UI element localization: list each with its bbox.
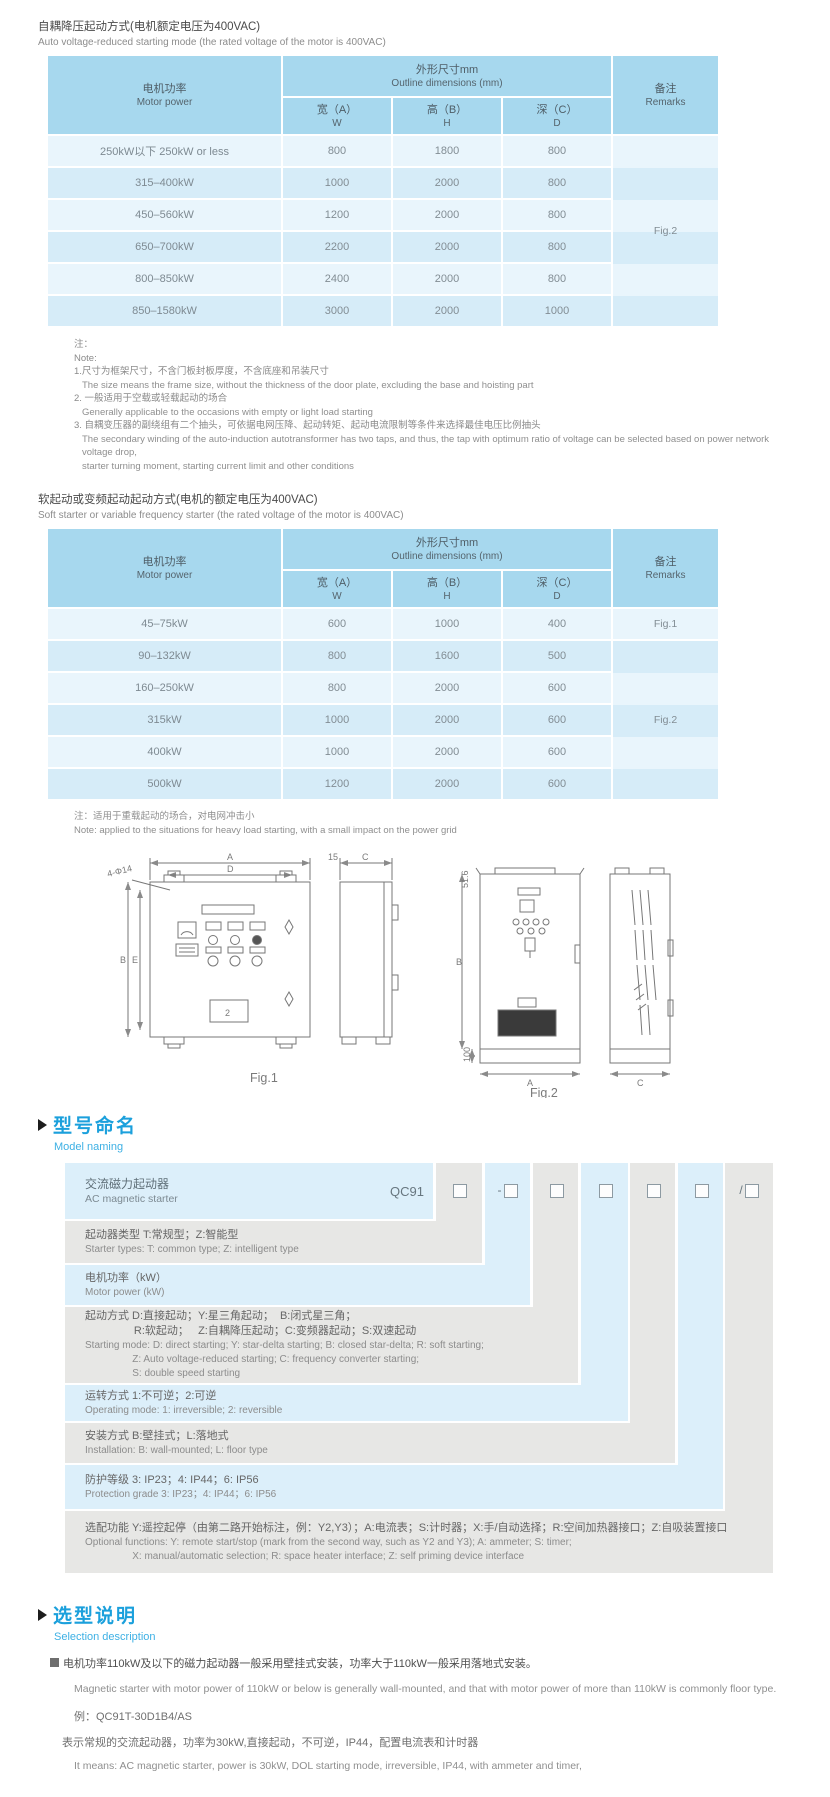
fig1-drawing bbox=[128, 858, 398, 1048]
naming-row-starter-type: 起动器类型 T:常规型；Z:智能型 Starter types: T: comm… bbox=[65, 1221, 482, 1263]
selection-line1-zh: 电机功率110kW及以下的磁力起动器一般采用壁挂式安装，功率大于110kW一般采… bbox=[50, 1655, 792, 1671]
cell-power: 250kW以下 250kW or less bbox=[48, 136, 283, 168]
code-strip-7: / bbox=[725, 1163, 773, 1511]
code-strip-5 bbox=[630, 1163, 675, 1423]
col-header-remarks: 备注 Remarks bbox=[613, 529, 720, 609]
fig2-dim-516: 51.6 bbox=[460, 870, 470, 888]
selection-header: 选型说明 Selection description bbox=[38, 1601, 792, 1643]
fig2-caption: Fig.2 bbox=[530, 1086, 558, 1098]
code-strip-1 bbox=[436, 1163, 482, 1221]
soft-title-zh: 软起动或变频起动起动方式(电机的额定电压为400VAC) bbox=[38, 491, 792, 507]
naming-row-optional-functions: 选配功能 Y:遥控起停（由第二路开始标注，例：Y2,Y3）；A:电流表；S:计时… bbox=[65, 1511, 773, 1573]
model-naming-header: 型号命名 Model naming bbox=[38, 1111, 792, 1153]
cell-depth: 800 bbox=[503, 200, 613, 232]
cell-height: 1000 bbox=[393, 609, 503, 641]
cell-width: 1200 bbox=[283, 200, 393, 232]
naming-row-en: Optional functions: Y: remote start/stop… bbox=[85, 1536, 773, 1564]
code-box-icon bbox=[550, 1184, 564, 1198]
col-remarks-zh: 备注 bbox=[613, 82, 718, 96]
technical-drawings: A D 4-Φ14 B E 15 C 2 Fig.1 bbox=[90, 850, 790, 1098]
naming-row-zh: 起动器类型 T:常规型；Z:智能型 bbox=[85, 1228, 482, 1243]
col-remarks-en: Remarks bbox=[613, 569, 718, 582]
cell-width: 600 bbox=[283, 609, 393, 641]
product-name-en: AC magnetic starter bbox=[85, 1192, 178, 1206]
cell-depth: 800 bbox=[503, 264, 613, 296]
note-item: Generally applicable to the occasions wi… bbox=[82, 406, 792, 420]
cell-depth: 600 bbox=[503, 673, 613, 705]
table-row: 90–132kW 800 1600 500 Fig.2 bbox=[48, 641, 720, 673]
naming-row-en: Starting mode: D: direct starting; Y: st… bbox=[85, 1339, 578, 1381]
col-d-zh: 深（C） bbox=[503, 576, 611, 590]
selection-title-zh: 选型说明 bbox=[53, 1606, 137, 1627]
auto-notes: 注： Note: 1.尺寸为框架尺寸，不含门板封板厚度，不含底座和吊装尺寸 Th… bbox=[74, 338, 792, 473]
cell-power: 45–75kW bbox=[48, 609, 283, 641]
product-label-box: 交流磁力起动器 AC magnetic starter bbox=[65, 1163, 433, 1219]
code-box-icon bbox=[599, 1184, 613, 1198]
cell-width: 3000 bbox=[283, 296, 393, 328]
cell-width: 800 bbox=[283, 136, 393, 168]
model-code-prefix: QC91 bbox=[390, 1163, 433, 1219]
col-outline-en: Outline dimensions (mm) bbox=[283, 550, 611, 563]
fig1-dim-c: C bbox=[362, 852, 369, 862]
code-box-icon bbox=[647, 1184, 661, 1198]
col-w-en: W bbox=[283, 590, 391, 603]
soft-note: 注：适用于重载起动的场合，对电网冲击小 Note: applied to the… bbox=[74, 810, 792, 838]
soft-dimensions-table: 电机功率 Motor power 外形尺寸mm Outline dimensio… bbox=[48, 529, 720, 801]
cell-depth: 400 bbox=[503, 609, 613, 641]
naming-row-en: Protection grade 3: IP23；4: IP44；6: IP56 bbox=[85, 1488, 723, 1502]
cell-power: 800–850kW bbox=[48, 264, 283, 296]
col-remarks-en: Remarks bbox=[613, 96, 718, 109]
cell-height: 2000 bbox=[393, 705, 503, 737]
catalog-page: 自耦降压起动方式(电机额定电压为400VAC) Auto voltage-red… bbox=[0, 0, 830, 1772]
cell-width: 2400 bbox=[283, 264, 393, 296]
triangle-bullet-icon bbox=[38, 1119, 47, 1131]
cell-height: 2000 bbox=[393, 264, 503, 296]
col-header-height: 高（B）H bbox=[393, 571, 503, 609]
col-w-zh: 宽（A） bbox=[283, 103, 391, 117]
fig1-dim-a: A bbox=[227, 852, 233, 862]
col-header-height: 高（B）H bbox=[393, 98, 503, 136]
col-w-en: W bbox=[283, 117, 391, 130]
code-prefix-char: - bbox=[498, 1184, 502, 1197]
cell-remark-fig1: Fig.1 bbox=[613, 609, 720, 641]
naming-row-zh: 起动方式 D:直接起动；Y:星三角起动； B:闭式星三角； R:软起动； Z:自… bbox=[85, 1309, 578, 1339]
naming-row-starting-mode: 起动方式 D:直接起动；Y:星三角起动； B:闭式星三角； R:软起动； Z:自… bbox=[65, 1307, 578, 1383]
col-motor-en: Motor power bbox=[48, 96, 281, 109]
cell-width: 1200 bbox=[283, 769, 393, 801]
cell-depth: 600 bbox=[503, 769, 613, 801]
fig1-dim-15: 15 bbox=[328, 852, 338, 862]
selection-example-zh: 表示常规的交流起动器，功率为30kW,直接起动，不可逆，IP44，配置电流表和计… bbox=[62, 1734, 792, 1750]
cell-power: 450–560kW bbox=[48, 200, 283, 232]
fig1-dim-d: D bbox=[227, 864, 234, 874]
naming-row-installation: 安装方式 B:壁挂式；L:落地式 Installation: B: wall-m… bbox=[65, 1423, 675, 1463]
model-naming-title-en: Model naming bbox=[54, 1141, 792, 1153]
cell-power: 500kW bbox=[48, 769, 283, 801]
naming-row-en: Installation: B: wall-mounted; L: floor … bbox=[85, 1444, 675, 1458]
col-header-width: 宽（A）W bbox=[283, 571, 393, 609]
cell-remark-fig2: Fig.2 bbox=[613, 136, 720, 328]
col-header-depth: 深（C）D bbox=[503, 98, 613, 136]
col-remarks-zh: 备注 bbox=[613, 555, 718, 569]
col-header-motor-power: 电机功率 Motor power bbox=[48, 529, 283, 609]
cell-height: 1800 bbox=[393, 136, 503, 168]
cell-power: 315kW bbox=[48, 705, 283, 737]
col-outline-zh: 外形尺寸mm bbox=[283, 536, 611, 550]
cell-power: 850–1580kW bbox=[48, 296, 283, 328]
fig2-dim-b: B bbox=[456, 957, 462, 967]
col-h-zh: 高（B） bbox=[393, 576, 501, 590]
cell-height: 2000 bbox=[393, 673, 503, 705]
col-motor-zh: 电机功率 bbox=[48, 555, 281, 569]
cell-power: 160–250kW bbox=[48, 673, 283, 705]
model-naming-title-zh: 型号命名 bbox=[53, 1116, 137, 1137]
code-prefix-char: / bbox=[739, 1184, 742, 1197]
col-outline-zh: 外形尺寸mm bbox=[283, 63, 611, 77]
soft-section-title: 软起动或变频起动起动方式(电机的额定电压为400VAC) Soft starte… bbox=[38, 491, 792, 521]
fig1-dim-e: E bbox=[132, 955, 138, 965]
cell-height: 2000 bbox=[393, 232, 503, 264]
cell-depth: 600 bbox=[503, 705, 613, 737]
col-h-en: H bbox=[393, 117, 501, 130]
cell-width: 800 bbox=[283, 673, 393, 705]
col-outline-en: Outline dimensions (mm) bbox=[283, 77, 611, 90]
col-h-zh: 高（B） bbox=[393, 103, 501, 117]
fig1-nameplate-label: 2 bbox=[225, 1008, 230, 1018]
col-header-depth: 深（C）D bbox=[503, 571, 613, 609]
cell-depth: 800 bbox=[503, 168, 613, 200]
cell-width: 2200 bbox=[283, 232, 393, 264]
auto-title-zh: 自耦降压起动方式(电机额定电压为400VAC) bbox=[38, 18, 792, 34]
fig1-caption: Fig.1 bbox=[250, 1071, 278, 1085]
selection-body: 电机功率110kW及以下的磁力起动器一般采用壁挂式安装，功率大于110kW一般采… bbox=[38, 1655, 792, 1772]
cell-height: 2000 bbox=[393, 168, 503, 200]
cell-depth: 1000 bbox=[503, 296, 613, 328]
cell-height: 1600 bbox=[393, 641, 503, 673]
code-strip-4 bbox=[581, 1163, 628, 1385]
table-row: 250kW以下 250kW or less 800 1800 800 Fig.2 bbox=[48, 136, 720, 168]
note-label-en: Note: bbox=[74, 352, 792, 366]
col-motor-en: Motor power bbox=[48, 569, 281, 582]
auto-dimensions-table: 电机功率 Motor power 外形尺寸mm Outline dimensio… bbox=[48, 56, 720, 328]
code-strip-3 bbox=[533, 1163, 578, 1307]
naming-row-operating-mode: 运转方式 1:不可逆；2:可逆 Operating mode: 1: irrev… bbox=[65, 1385, 628, 1421]
fig1-labels: A D 4-Φ14 B E 15 C 2 Fig.1 bbox=[106, 852, 369, 1085]
cell-width: 1000 bbox=[283, 737, 393, 769]
triangle-bullet-icon bbox=[38, 1609, 47, 1621]
code-box-icon bbox=[695, 1184, 709, 1198]
fig2-dim-c: C bbox=[637, 1078, 644, 1088]
note-item: 2. 一般适用于空载或轻载起动的场合 bbox=[74, 392, 792, 406]
naming-row-en: Motor power (kW) bbox=[85, 1286, 530, 1300]
note-item: 1.尺寸为框架尺寸，不含门板封板厚度，不含底座和吊装尺寸 bbox=[74, 365, 792, 379]
cell-height: 2000 bbox=[393, 200, 503, 232]
note-label-zh: 注： bbox=[74, 338, 792, 352]
figures-block: A D 4-Φ14 B E 15 C 2 Fig.1 bbox=[90, 850, 792, 1103]
cell-depth: 800 bbox=[503, 232, 613, 264]
model-naming-diagram: - / 交流磁力起动器 AC magnetic starter QC91 起动器… bbox=[65, 1163, 775, 1573]
code-strip-2: - bbox=[485, 1163, 530, 1265]
naming-row-zh: 运转方式 1:不可逆；2:可逆 bbox=[85, 1389, 628, 1404]
selection-example-code: 例：QC91T-30D1B4/AS bbox=[74, 1708, 792, 1724]
col-header-motor-power: 电机功率 Motor power bbox=[48, 56, 283, 136]
cell-remark-fig2: Fig.2 bbox=[613, 641, 720, 801]
product-name-zh: 交流磁力起动器 bbox=[85, 1176, 178, 1192]
fig2-drawing bbox=[462, 868, 673, 1074]
naming-row-zh: 选配功能 Y:遥控起停（由第二路开始标注，例：Y2,Y3）；A:电流表；S:计时… bbox=[85, 1521, 773, 1536]
fig1-dim-b: B bbox=[120, 955, 126, 965]
naming-row-en: Operating mode: 1: irreversible; 2: reve… bbox=[85, 1404, 628, 1418]
soft-title-en: Soft starter or variable frequency start… bbox=[38, 510, 792, 521]
selection-example-en: It means: AC magnetic starter, power is … bbox=[74, 1760, 792, 1772]
col-header-outline: 外形尺寸mm Outline dimensions (mm) bbox=[283, 56, 613, 98]
cell-height: 2000 bbox=[393, 769, 503, 801]
soft-note-zh: 注：适用于重载起动的场合，对电网冲击小 bbox=[74, 810, 792, 824]
naming-row-zh: 防护等级 3: IP23；4: IP44；6: IP56 bbox=[85, 1473, 723, 1488]
col-header-width: 宽（A）W bbox=[283, 98, 393, 136]
cell-width: 1000 bbox=[283, 705, 393, 737]
code-box-icon bbox=[745, 1184, 759, 1198]
note-item: The secondary winding of the auto-induct… bbox=[82, 433, 792, 474]
col-d-en: D bbox=[503, 590, 611, 603]
cell-depth: 600 bbox=[503, 737, 613, 769]
col-header-outline: 外形尺寸mm Outline dimensions (mm) bbox=[283, 529, 613, 571]
col-d-en: D bbox=[503, 117, 611, 130]
auto-section-title: 自耦降压起动方式(电机额定电压为400VAC) Auto voltage-red… bbox=[38, 18, 792, 48]
note-item: 3. 自耦变压器的副绕组有二个抽头，可依据电网压降、起动转矩、起动电流限制等条件… bbox=[74, 419, 792, 433]
square-bullet-icon bbox=[50, 1658, 59, 1667]
code-strip-6 bbox=[678, 1163, 723, 1465]
col-d-zh: 深（C） bbox=[503, 103, 611, 117]
cell-power: 400kW bbox=[48, 737, 283, 769]
soft-note-en: Note: applied to the situations for heav… bbox=[74, 824, 792, 838]
cell-width: 1000 bbox=[283, 168, 393, 200]
fig1-holes-label: 4-Φ14 bbox=[106, 863, 133, 879]
code-box-icon bbox=[504, 1184, 518, 1198]
selection-title-en: Selection description bbox=[54, 1631, 792, 1643]
cell-power: 650–700kW bbox=[48, 232, 283, 264]
cell-width: 800 bbox=[283, 641, 393, 673]
auto-title-en: Auto voltage-reduced starting mode (the … bbox=[38, 37, 792, 48]
selection-line1-zh-text: 电机功率110kW及以下的磁力起动器一般采用壁挂式安装，功率大于110kW一般采… bbox=[63, 1658, 537, 1670]
naming-row-zh: 安装方式 B:壁挂式；L:落地式 bbox=[85, 1429, 675, 1444]
naming-row-en: Starter types: T: common type; Z: intell… bbox=[85, 1243, 482, 1257]
naming-row-zh: 电机功率（kW） bbox=[85, 1271, 530, 1286]
cell-height: 2000 bbox=[393, 737, 503, 769]
col-header-remarks: 备注 Remarks bbox=[613, 56, 720, 136]
fig2-dim-100: 100 bbox=[462, 1047, 472, 1062]
cell-power: 90–132kW bbox=[48, 641, 283, 673]
cell-power: 315–400kW bbox=[48, 168, 283, 200]
cell-depth: 800 bbox=[503, 136, 613, 168]
fig2-labels: 51.6 B 100 A C Fig.2 bbox=[456, 870, 644, 1098]
note-item: The size means the frame size, without t… bbox=[82, 379, 792, 393]
naming-row-motor-power: 电机功率（kW） Motor power (kW) bbox=[65, 1265, 530, 1305]
table-row: 45–75kW 600 1000 400 Fig.1 bbox=[48, 609, 720, 641]
selection-line1-en: Magnetic starter with motor power of 110… bbox=[74, 1681, 786, 1698]
col-h-en: H bbox=[393, 590, 501, 603]
code-box-icon bbox=[453, 1184, 467, 1198]
cell-depth: 500 bbox=[503, 641, 613, 673]
col-motor-zh: 电机功率 bbox=[48, 82, 281, 96]
cell-height: 2000 bbox=[393, 296, 503, 328]
naming-row-protection-grade: 防护等级 3: IP23；4: IP44；6: IP56 Protection … bbox=[65, 1465, 723, 1509]
col-w-zh: 宽（A） bbox=[283, 576, 391, 590]
